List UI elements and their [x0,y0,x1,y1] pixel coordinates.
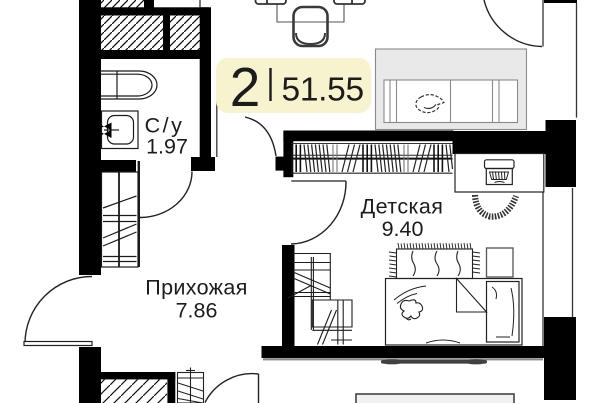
svg-text:1.97: 1.97 [146,135,188,159]
svg-text:Прихожая: Прихожая [145,276,247,300]
svg-text:2: 2 [230,56,261,118]
svg-text:51.55: 51.55 [282,72,364,109]
svg-text:9.40: 9.40 [382,217,424,241]
svg-text:Детская: Детская [361,195,444,219]
svg-text:7.86: 7.86 [176,299,218,323]
